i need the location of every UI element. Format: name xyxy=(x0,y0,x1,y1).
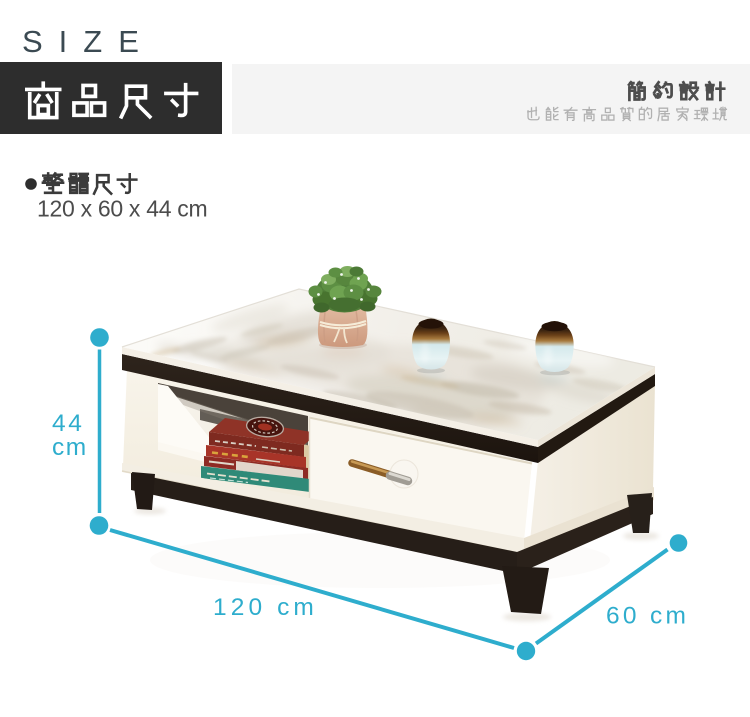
svg-text:60 cm: 60 cm xyxy=(606,603,689,630)
svg-text:120 x 60 x 44 cm: 120 x 60 x 44 cm xyxy=(37,196,207,222)
svg-text:cm: cm xyxy=(52,434,88,461)
svg-text:44: 44 xyxy=(52,410,84,437)
svg-text:120 cm: 120 cm xyxy=(213,594,318,621)
svg-text:SIZE: SIZE xyxy=(22,24,155,59)
